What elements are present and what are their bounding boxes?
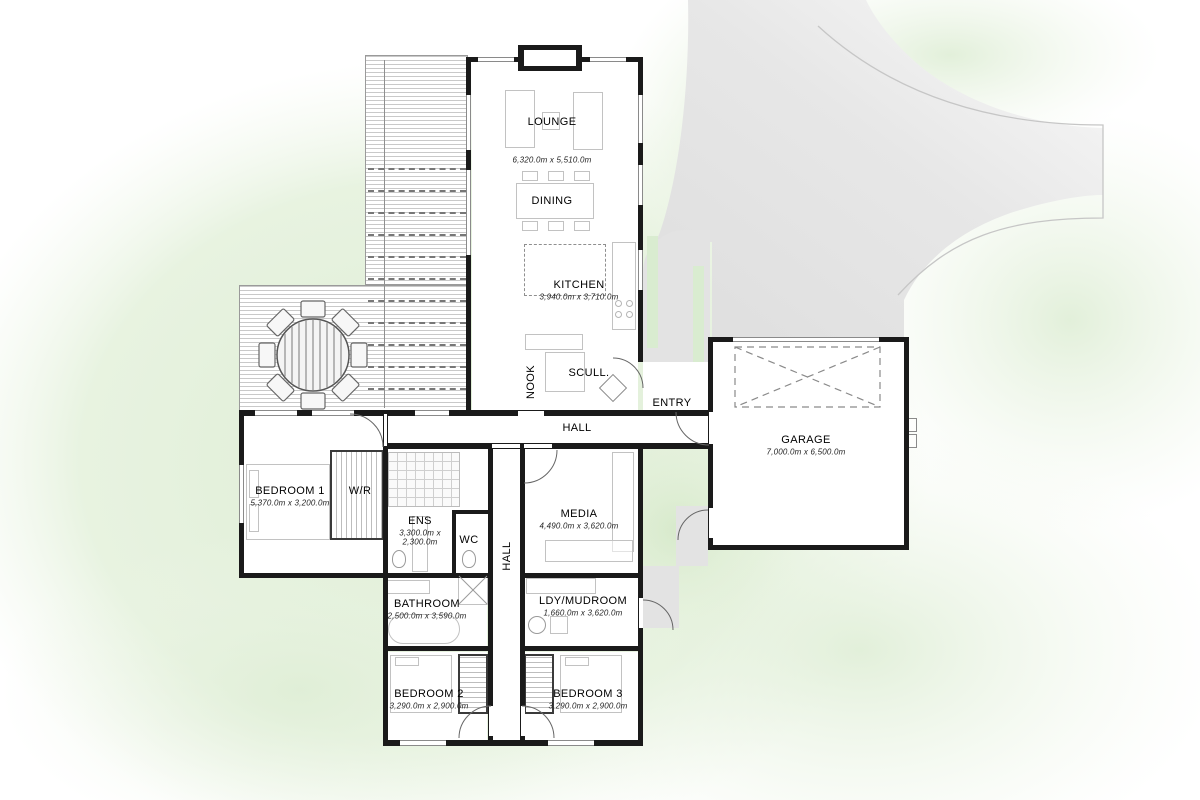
ensuite-shower-tiles	[388, 452, 460, 507]
room-dims-laundry: 1,660.0m x 3,620.0m	[544, 609, 623, 618]
window	[548, 740, 594, 746]
window	[466, 95, 471, 150]
room-dims-garage: 7,000.0m x 6,500.0m	[767, 448, 846, 457]
toilet	[462, 550, 476, 568]
wall-bathroom-top	[383, 573, 493, 578]
window	[590, 57, 626, 62]
room-dims-bathroom: 2,500.0m x 3,590.0m	[388, 612, 467, 621]
media-sofa	[612, 452, 634, 552]
toilet	[392, 550, 406, 568]
cooktop-burner	[615, 311, 622, 318]
room-dims-bedroom2: 3,290.0m x 2,900.0m	[390, 702, 469, 711]
pergola-beam	[368, 234, 466, 236]
pergola-beam	[368, 168, 466, 170]
dining-chair	[574, 221, 590, 231]
pergola-beam	[368, 212, 466, 214]
laundry-tub	[550, 616, 568, 634]
dining-chair	[574, 171, 590, 181]
cooktop-burner	[626, 311, 633, 318]
bed-pillow	[565, 657, 589, 666]
sofa	[573, 92, 603, 150]
bed-pillow	[395, 657, 419, 666]
planter-strip	[647, 236, 658, 348]
door-gap-media	[524, 444, 552, 448]
room-label-wc: WC	[459, 534, 478, 546]
room-label-bathroom: BATHROOM	[394, 598, 460, 610]
door-gap-bedroom3	[521, 706, 525, 736]
media-sofa	[545, 540, 633, 562]
bathroom-vanity	[386, 580, 430, 594]
wall-ens-wc-divider	[452, 510, 456, 578]
room-label-media: MEDIA	[561, 508, 598, 520]
room-dims-lounge: 6,320.0m x 5,510.0m	[513, 156, 592, 165]
wall-media-right	[638, 443, 643, 746]
wall-garage-bottom	[708, 545, 909, 550]
wall-media-bottom	[520, 573, 643, 578]
dining-chair	[548, 171, 564, 181]
room-label-hall-lower: HALL	[501, 541, 513, 570]
window	[638, 250, 643, 290]
room-label-bedroom1: BEDROOM 1	[255, 485, 325, 497]
room-label-lounge: LOUNGE	[528, 116, 577, 128]
pergola-beam	[368, 190, 466, 192]
window	[239, 465, 244, 523]
wall-hall-lower-right	[520, 443, 525, 746]
dining-chair	[522, 171, 538, 181]
door-gap-bedroom2	[489, 706, 493, 736]
pergola-beam	[368, 278, 466, 280]
nook-bench	[525, 334, 583, 350]
room-label-ensuite: ENS	[408, 515, 432, 527]
room-label-scullery: SCULL.	[569, 367, 610, 379]
pergola-beam	[368, 344, 466, 346]
laundry-bench	[526, 578, 596, 594]
floor-hall-lower	[493, 449, 520, 740]
wall-garage-right	[904, 337, 909, 550]
window	[638, 95, 643, 143]
floor-plan-canvas: LOUNGE 6,320.0m x 5,510.0m DINING KITCHE…	[0, 0, 1200, 800]
room-label-kitchen: KITCHEN	[553, 279, 604, 291]
room-dims-ensuite-1: 3,300.0m x	[399, 529, 441, 538]
pergola-beam	[368, 388, 466, 390]
room-label-dining: DINING	[532, 195, 573, 207]
wall-bedroom2-left	[383, 646, 388, 746]
cooktop-burner	[626, 300, 633, 307]
bay-window-inner	[524, 50, 576, 66]
pergola-beam	[368, 322, 466, 324]
wall-bedroom1-bottom	[239, 573, 388, 578]
room-label-bedroom2: BEDROOM 2	[394, 688, 464, 700]
room-label-laundry: LDY/MUDROOM	[539, 595, 627, 607]
room-dims-ensuite-2: 2,300.0m	[403, 538, 438, 547]
pergola-beam	[368, 366, 466, 368]
door-gap-garage-side	[709, 508, 713, 538]
room-dims-media: 4,490.0m x 3,620.0m	[540, 522, 619, 531]
room-dims-kitchen: 3,940.0m x 3,710.0m	[540, 293, 619, 302]
mudroom-landing	[641, 566, 679, 628]
room-label-entry: ENTRY	[652, 397, 691, 409]
pergola-beam	[368, 300, 466, 302]
window	[478, 57, 514, 62]
door-gap-bedroom1	[384, 414, 387, 446]
washing-machine	[528, 616, 546, 634]
wall-laundry-bottom	[520, 646, 643, 651]
room-label-bedroom3: BEDROOM 3	[553, 688, 623, 700]
window	[638, 165, 643, 205]
wall-hall-lower-left	[488, 443, 493, 746]
wall-bathroom-bottom	[383, 646, 493, 651]
shower	[458, 575, 488, 605]
wall-wing-top	[239, 410, 710, 416]
dining-chair	[548, 221, 564, 231]
garage-door-opening	[733, 337, 879, 342]
room-dims-bedroom3: 3,290.0m x 2,900.0m	[549, 702, 628, 711]
garage-side-landing	[676, 506, 708, 566]
window	[255, 410, 297, 416]
room-label-wardrobe: W/R	[349, 485, 372, 497]
room-label-hall-upper: HALL	[562, 422, 591, 434]
door-gap-hall-junction	[492, 444, 520, 448]
bed-pillow	[249, 504, 259, 532]
door-gap-scullery	[518, 411, 544, 416]
wall-wc-top	[452, 510, 492, 514]
window	[400, 740, 446, 746]
room-label-nook: NOOK	[525, 365, 537, 399]
door-gap-mudroom	[639, 598, 643, 628]
deck-main	[239, 285, 468, 411]
window	[312, 410, 354, 416]
window-slider	[466, 170, 471, 255]
dining-chair	[522, 221, 538, 231]
deck-vertical	[365, 55, 468, 285]
window	[415, 410, 449, 416]
pergola-beam	[368, 256, 466, 258]
planter-strip	[693, 266, 704, 362]
room-dims-bedroom1: 5,370.0m x 3,200.0m	[251, 499, 330, 508]
room-label-garage: GARAGE	[781, 434, 830, 446]
door-gap-entry	[709, 412, 713, 444]
